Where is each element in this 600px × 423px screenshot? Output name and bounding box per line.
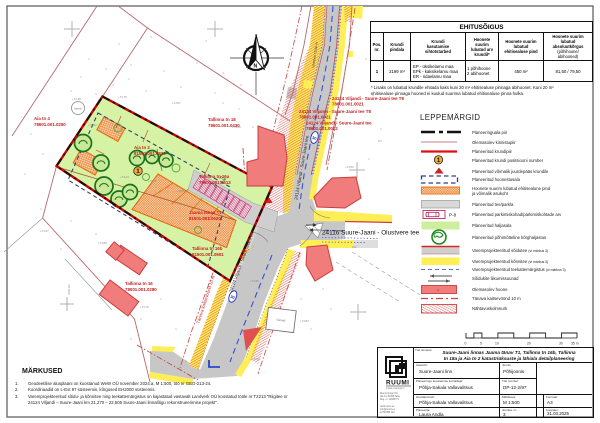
- svg-text:35 m: 35 m: [571, 342, 579, 346]
- svg-text:∨: ∨: [258, 287, 260, 291]
- svg-text:78601.001.0021: 78601.001.0021: [299, 115, 331, 120]
- svg-text:10: 10: [495, 342, 499, 346]
- svg-text:∨: ∨: [130, 337, 132, 341]
- svg-text:∨: ∨: [145, 89, 147, 93]
- svg-text:20: 20: [527, 342, 531, 346]
- svg-text:78601.001.0021: 78601.001.0021: [332, 102, 364, 107]
- svg-text:N: N: [254, 64, 258, 70]
- svg-text:∨: ∨: [95, 92, 97, 96]
- svg-text:Tallinna tn 16a: Tallinna tn 16a: [199, 174, 230, 179]
- svg-text:78601.001.0250: 78601.001.0250: [34, 122, 66, 127]
- svg-text:∨: ∨: [222, 101, 224, 105]
- svg-text:∨: ∨: [205, 39, 207, 43]
- svg-text:1: 1: [136, 168, 140, 175]
- svg-text:5: 5: [480, 342, 482, 346]
- svg-text:+73,79: +73,79: [140, 305, 149, 309]
- svg-text:81501.001.0620: 81501.001.0620: [189, 216, 221, 221]
- svg-text:24124 Viljandi - Suure-Jaani t: 24124 Viljandi - Suure-Jaani tee: [306, 121, 372, 126]
- svg-text:∨: ∨: [238, 107, 240, 111]
- svg-text:+73,61: +73,61: [252, 357, 261, 361]
- svg-text:+73,88: +73,88: [250, 279, 259, 283]
- svg-text:24124 Viljandi - Suure-Jaani t: 24124 Viljandi - Suure-Jaani tee T8: [332, 96, 404, 101]
- svg-text:∨: ∨: [150, 352, 152, 356]
- svg-text:∨: ∨: [24, 172, 26, 176]
- svg-text:kaevis: kaevis: [74, 107, 82, 111]
- svg-text:∨: ∨: [365, 57, 367, 61]
- svg-text:Tallinna tn 18: Tallinna tn 18: [208, 117, 236, 122]
- svg-text:∨: ∨: [322, 287, 324, 291]
- svg-text:+74,11: +74,11: [148, 179, 157, 183]
- svg-text:+74,24: +74,24: [120, 175, 129, 179]
- svg-text:Aia tn 4: Aia tn 4: [34, 116, 50, 121]
- svg-text:P-8: P-8: [449, 213, 457, 218]
- svg-text:∨: ∨: [30, 132, 32, 136]
- svg-text:+74,42: +74,42: [88, 123, 97, 127]
- svg-text:∨: ∨: [214, 91, 216, 95]
- svg-text:∨: ∨: [250, 307, 252, 311]
- svg-text:+74,57: +74,57: [172, 101, 181, 105]
- svg-text:+74,48: +74,48: [72, 97, 81, 101]
- svg-text:∨: ∨: [380, 127, 382, 131]
- svg-text:∨: ∨: [163, 69, 165, 73]
- svg-text:∨: ∨: [180, 85, 182, 89]
- svg-text:∨: ∨: [222, 71, 224, 75]
- svg-text:∨: ∨: [118, 42, 120, 46]
- svg-text:+73,84: +73,84: [300, 319, 309, 323]
- svg-text:∨: ∨: [175, 327, 177, 331]
- svg-text:30: 30: [559, 342, 563, 346]
- svg-text:78601.001.0613: 78601.001.0613: [199, 180, 231, 185]
- svg-text:∨: ∨: [88, 57, 90, 61]
- svg-text:78601.001.0022: 78601.001.0022: [306, 126, 338, 131]
- svg-text:+74,86: +74,86: [98, 241, 107, 245]
- svg-text:∨: ∨: [130, 63, 132, 67]
- svg-text:+74,75: +74,75: [118, 95, 127, 99]
- svg-text:+73,60: +73,60: [345, 165, 354, 169]
- svg-text:101: 101: [352, 245, 357, 249]
- svg-text:RUUMILOOME BÜROO: RUUMILOOME BÜROO: [386, 387, 405, 390]
- svg-text:Jaama tänav T1: Jaama tänav T1: [189, 210, 222, 215]
- svg-text:+74,07: +74,07: [40, 229, 49, 233]
- svg-text:∨: ∨: [105, 67, 107, 71]
- svg-text:∨: ∨: [95, 232, 97, 236]
- svg-text:RUUMI: RUUMI: [386, 380, 409, 387]
- svg-text:∨: ∨: [128, 77, 130, 81]
- svg-text:∨: ∨: [368, 157, 370, 161]
- svg-text:∨: ∨: [112, 83, 114, 87]
- svg-text:∨: ∨: [240, 83, 242, 87]
- svg-text:∨: ∨: [160, 297, 162, 301]
- svg-text:81501.001.0820: 81501.001.0820: [134, 151, 166, 156]
- svg-text:Pu: Pu: [378, 139, 382, 143]
- svg-text:∨: ∨: [42, 152, 44, 156]
- svg-text:+74,80: +74,80: [232, 125, 241, 129]
- svg-text:+74,85: +74,85: [176, 189, 185, 193]
- svg-text:0: 0: [465, 342, 467, 346]
- svg-text:∨: ∨: [310, 327, 312, 331]
- svg-text:78001.001.0280: 78001.001.0280: [125, 287, 157, 292]
- svg-text:∨: ∨: [178, 47, 180, 51]
- svg-text:∨: ∨: [60, 247, 62, 251]
- svg-text:24116 Suure-Jaani - Olustvere: 24116 Suure-Jaani - Olustvere tee: [322, 230, 420, 237]
- svg-text:Tallinna tn 16b: Tallinna tn 16b: [192, 246, 223, 251]
- svg-text:∨: ∨: [80, 75, 82, 79]
- svg-text:∨: ∨: [196, 61, 198, 65]
- svg-text:∨: ∨: [70, 89, 72, 93]
- svg-text:∨: ∨: [330, 307, 332, 311]
- svg-text:Aia tn 2: Aia tn 2: [134, 145, 150, 150]
- svg-text:6480400: 6480400: [67, 284, 71, 295]
- svg-text:24124 Viljandi - Suure-Jaani t: 24124 Viljandi - Suure-Jaani tee T8: [299, 109, 371, 114]
- svg-text:∨: ∨: [140, 317, 142, 321]
- svg-text:∨: ∨: [70, 219, 72, 223]
- svg-text:∨: ∨: [150, 35, 152, 39]
- svg-text:∨: ∨: [40, 207, 42, 211]
- svg-text:∨: ∨: [300, 297, 302, 301]
- svg-text:∨: ∨: [185, 359, 187, 363]
- svg-text:81501.001.0501: 81501.001.0501: [192, 252, 224, 257]
- svg-text:Tallinna tn 16: Tallinna tn 16: [125, 281, 153, 286]
- svg-text:∨: ∨: [252, 125, 254, 129]
